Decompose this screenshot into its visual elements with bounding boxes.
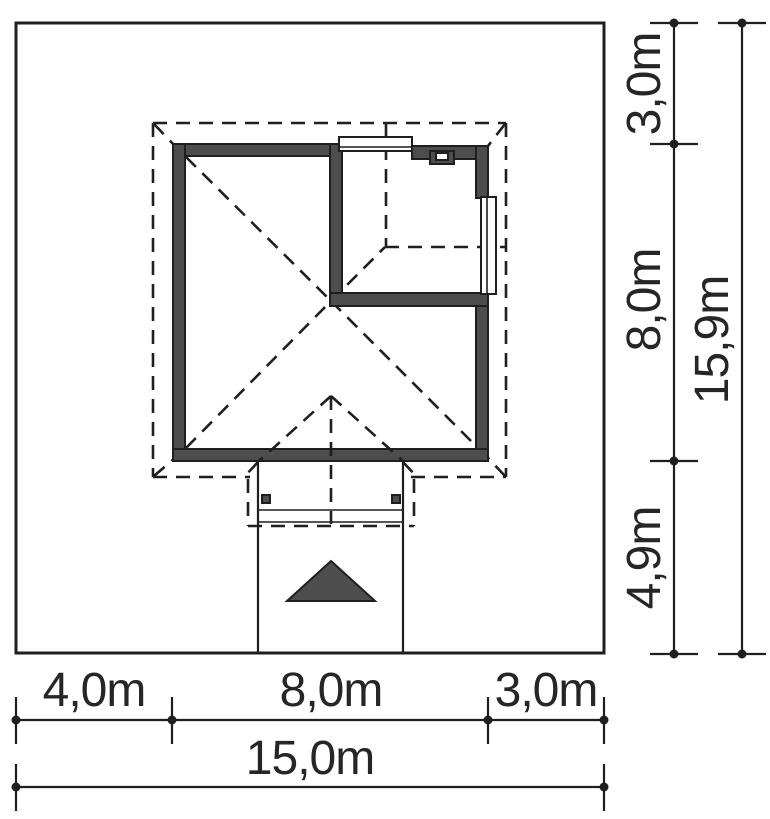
dim-label-right-1: 8,0m [618,249,671,352]
porch-post-right [392,495,400,503]
dim-label-right-0: 3,0m [618,33,671,136]
dimension-line-bottom-total: 15,0m [12,732,609,811]
dim-dot [600,783,609,792]
wall-wing-bottom [330,293,488,306]
dim-dot [670,140,679,149]
eaves-mitre-porch-left [245,462,258,476]
entrance-arrow-icon [287,561,375,601]
dim-label-bottom-1: 8,0m [280,664,383,717]
dim-dot [168,716,177,725]
plot-boundary [16,23,604,653]
dim-label-bottom-2: 3,0m [495,664,598,717]
site-plan: 3,0m 8,0m 4,9m 15,9m 4,0m 8,0m 3,0 [0,0,770,819]
eaves-mitre-top-right [488,124,505,146]
dim-dot [670,650,679,659]
wall-top [173,144,339,156]
roof-window-right [481,197,496,294]
hip-diagonal-sw [186,301,331,448]
eaves-mitre-porch-right [403,462,416,476]
dimension-line-right-total: 15,9m [686,19,766,659]
dim-label-bottom-total: 15,0m [246,732,374,785]
roof-window-right-frame [481,197,496,294]
dim-dot [738,650,747,659]
wall-wing-right-upper [476,146,488,198]
hip-diagonal-nw [186,157,331,301]
wall-left [173,144,185,461]
dim-dot [12,783,21,792]
dim-label-bottom-0: 4,0m [43,664,146,717]
dim-dot [670,19,679,28]
roof-ridge-dashed-lines [186,123,506,448]
wall-right-lower [476,306,488,449]
eaves-mitre-top-left [154,124,175,146]
dim-dot [484,716,493,725]
hip-diagonal-se [331,301,476,446]
roof-window-top-frame [339,137,412,151]
chimney [430,151,454,164]
eaves-mitre-bottom-left [154,458,175,476]
dim-dot [670,457,679,466]
dim-label-right-total: 15,9m [686,276,739,404]
eaves-mitre-bottom-right [488,458,505,476]
chimney-flue [436,153,448,160]
wall-inner-vertical [330,144,342,306]
roof-window-top [339,137,412,151]
dim-dot [738,19,747,28]
dim-dot [12,716,21,725]
dim-label-right-2: 4,9m [618,507,671,610]
dim-dot [600,716,609,725]
porch-post-left [262,495,270,503]
